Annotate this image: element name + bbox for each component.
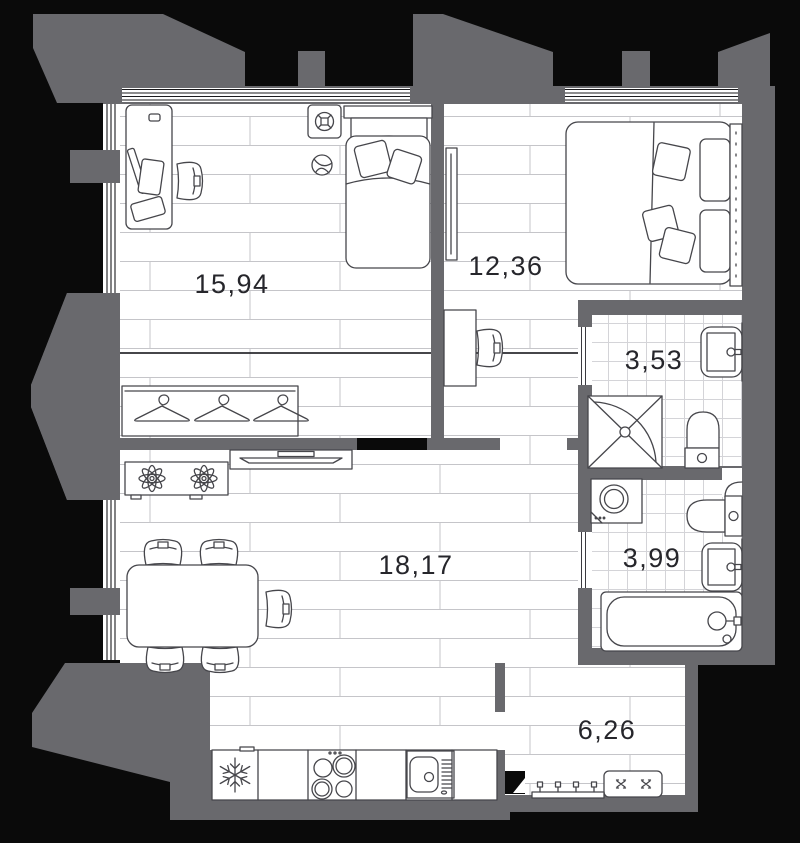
faucet	[727, 348, 735, 356]
wall-stub-left-top	[70, 150, 120, 183]
fridge-handle	[240, 747, 254, 751]
sideboard	[125, 462, 228, 495]
fan-center	[321, 118, 328, 125]
pillow	[700, 139, 730, 201]
dining-chair	[201, 647, 238, 673]
mid-wall-b	[427, 438, 500, 450]
shoe-bench	[604, 771, 662, 797]
headboard	[730, 124, 742, 286]
room-area-label: 15,94	[194, 269, 269, 299]
monitor-screen	[138, 159, 165, 196]
hallway-left-wall-stub	[495, 663, 505, 712]
toilet	[687, 412, 719, 448]
bedroom-area-label: 12,36	[468, 251, 543, 281]
desk-chair	[177, 162, 203, 199]
wall-stub-left-bottom	[70, 588, 120, 615]
toilet-2	[687, 500, 725, 532]
coat-rack	[532, 792, 604, 798]
bathroom-top-wall	[578, 300, 775, 315]
dining-table	[127, 565, 258, 647]
mid-wall-a	[120, 438, 357, 450]
bathroom-area-label: 3,53	[625, 345, 684, 375]
living-kitchen-area-label: 18,17	[378, 550, 453, 580]
floor-plan: 15,94 12,36 3,53 3,99 18,17 6,26	[0, 0, 800, 843]
bedroom-chair	[477, 329, 503, 366]
tv-stand	[278, 452, 314, 457]
dining-chair	[200, 540, 237, 566]
pillow	[700, 210, 730, 272]
sideboard-foot	[131, 495, 141, 499]
kitchen-left-wall	[205, 750, 212, 800]
sideboard-foot	[190, 495, 202, 499]
faucet-2	[727, 563, 735, 571]
pillow	[659, 227, 697, 265]
toilet-2-tank	[725, 496, 742, 536]
right-wall	[742, 95, 775, 665]
pillow	[652, 142, 691, 181]
partition-wall	[431, 104, 444, 450]
dining-chair	[144, 540, 181, 566]
hallway-area-label: 6,26	[578, 715, 637, 745]
bed-headboard	[344, 106, 432, 118]
dining-chair	[266, 590, 292, 627]
bathtub-faucet	[708, 612, 726, 630]
bathroom2-area-label: 3,99	[623, 543, 682, 573]
toilet-tank	[685, 448, 719, 468]
kitchen-counter	[212, 747, 497, 800]
shower-drain	[620, 427, 630, 437]
dining-chair	[146, 647, 183, 673]
hallway-right-wall	[685, 665, 698, 812]
floor-plan-drawing: 15,94 12,36 3,53 3,99 18,17 6,26	[0, 0, 800, 843]
tv-flat-icon	[240, 458, 342, 463]
bedroom-desk	[444, 310, 476, 386]
kitchen-bottom-wall	[170, 800, 510, 820]
kitchen-right-wall	[497, 750, 505, 800]
desk-item	[149, 114, 160, 121]
